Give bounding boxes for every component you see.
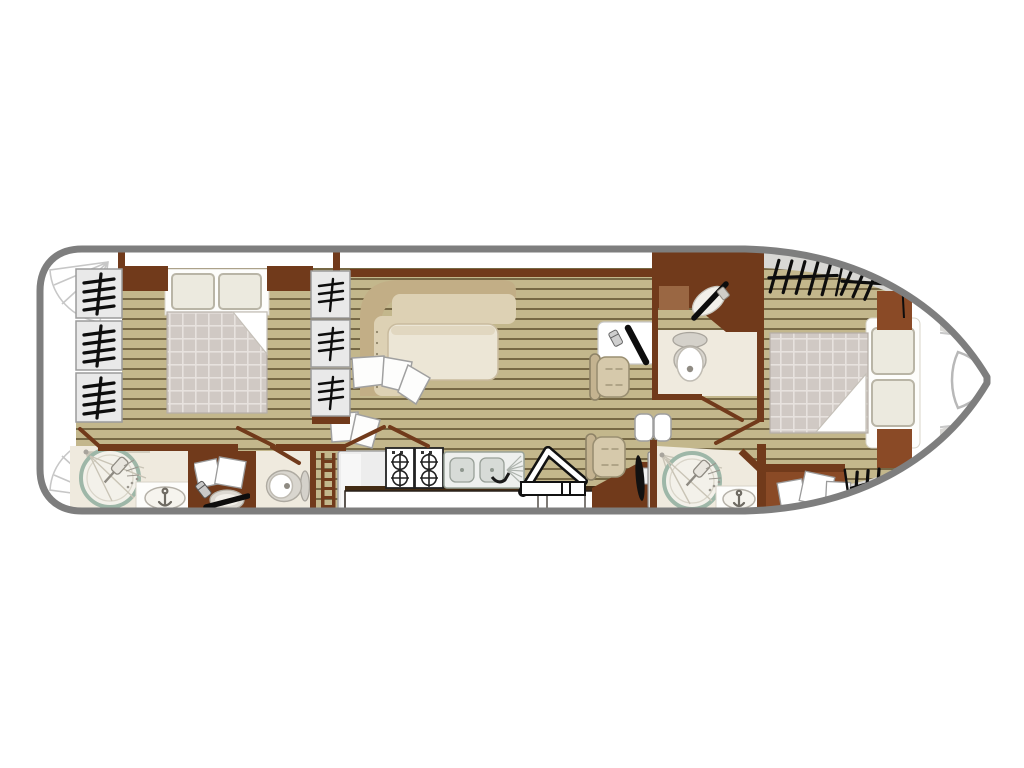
toilet-icon (267, 471, 310, 502)
window-blind-icon (76, 269, 122, 318)
vanity-panel (659, 286, 689, 310)
window-blind-icon (311, 369, 350, 416)
steps-front-cabin (635, 414, 671, 441)
double-bed-fore (770, 318, 920, 448)
boat-floor-plan (0, 0, 1024, 768)
pillow (872, 380, 914, 426)
window-blind-icon (76, 321, 122, 370)
pillow (172, 274, 214, 309)
double-bed-aft (165, 269, 269, 413)
vanity-desk (194, 451, 250, 512)
wardrobe-starboard (267, 266, 313, 291)
helm-seat-rear (586, 434, 625, 480)
bow-seat (952, 352, 986, 408)
fore-cabin-bottom-wall (763, 464, 845, 472)
stove-icon (386, 448, 443, 488)
aft-cabin-inner-windows (311, 271, 350, 416)
book-icon (215, 457, 246, 488)
window-blind-icon (311, 271, 350, 318)
window-blind-icon (311, 320, 350, 367)
galley-sink-icon (444, 452, 524, 488)
helm-seat-front (590, 354, 629, 400)
pillow (872, 328, 914, 374)
floor-plan-page (0, 0, 1024, 768)
wardrobe-port (122, 266, 168, 291)
stern-windows (76, 269, 122, 422)
window-blind-icon (76, 373, 122, 422)
pillow (219, 274, 261, 309)
